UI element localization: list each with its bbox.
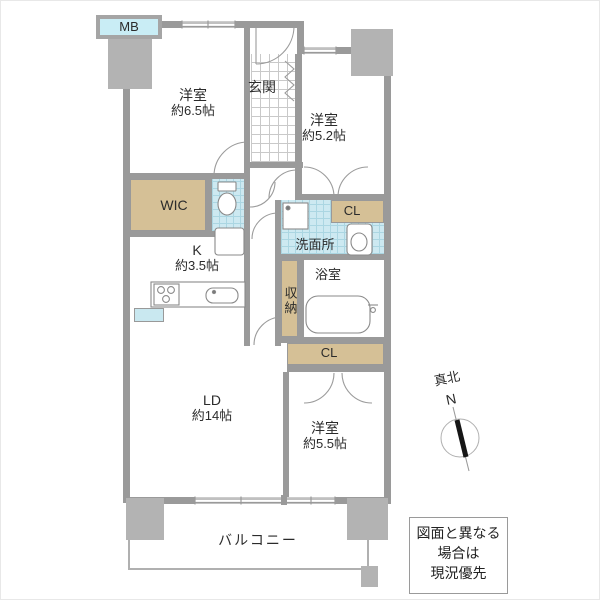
stove bbox=[154, 284, 179, 305]
wall-corridor-right bbox=[275, 200, 281, 346]
balcony-outline-bottom bbox=[128, 568, 363, 570]
bathtub bbox=[306, 296, 370, 333]
closet-upper-label: CL bbox=[344, 203, 361, 219]
meter-box-label: MB bbox=[119, 19, 139, 35]
room-name: 洋室 bbox=[171, 87, 215, 103]
bath-faucet-knob bbox=[371, 308, 376, 313]
room-name: WIC bbox=[160, 197, 187, 213]
kitchen-sink bbox=[206, 288, 238, 303]
wall-top-left bbox=[151, 21, 304, 28]
balcony-drain-block bbox=[361, 566, 378, 587]
pipe-space-box bbox=[134, 308, 164, 322]
room-name: 洋室 bbox=[302, 112, 346, 128]
disclaimer-line: 場合は bbox=[410, 543, 507, 563]
compass-needle bbox=[457, 420, 466, 457]
room-name: バルコニー bbox=[218, 532, 298, 548]
true-north-label: 真北 bbox=[433, 368, 462, 389]
stove-burner bbox=[163, 296, 170, 303]
room-name: 洗面所 bbox=[295, 237, 334, 253]
compass bbox=[441, 407, 479, 471]
wall-bedroom65-bottom bbox=[130, 173, 250, 179]
wall-ld-bedroom55 bbox=[283, 372, 289, 503]
wall-wic-bottom bbox=[130, 231, 246, 237]
closet-lower-door-arc-right bbox=[342, 373, 372, 403]
wall-bedroom52-bottom bbox=[295, 194, 391, 200]
stove-burner bbox=[158, 287, 165, 294]
wall-corridor-left bbox=[244, 168, 250, 346]
bedroom55-label: 洋室 約5.5帖 bbox=[303, 420, 347, 452]
wic-label: WIC bbox=[160, 197, 187, 213]
entrance-floor bbox=[251, 54, 295, 162]
balcony-outline-left bbox=[128, 539, 130, 570]
room-name: LD bbox=[192, 392, 232, 408]
washroom-label: 洗面所 bbox=[295, 237, 334, 253]
closet-upper-door-arc-left bbox=[304, 167, 334, 197]
storage-label: 収納 bbox=[281, 286, 300, 316]
room-name: CL bbox=[344, 203, 361, 219]
kitchen-counter bbox=[151, 282, 245, 307]
toilet-floor bbox=[212, 179, 244, 231]
wall-right bbox=[384, 53, 391, 503]
pillar-bottom-left bbox=[126, 498, 164, 540]
wall-wic-toilet bbox=[206, 179, 212, 237]
entrance-label: 玄関 bbox=[248, 79, 276, 95]
wall-bath-bottom bbox=[275, 337, 391, 343]
balcony-outline-right bbox=[367, 540, 369, 567]
floorplan-canvas: MB 洋室 約6.5帖 玄関 洋室 約5.2帖 WIC K 約3.5帖 洗面所 … bbox=[0, 0, 600, 600]
toilet-door-arc bbox=[250, 182, 275, 207]
room-size: 約3.5帖 bbox=[175, 258, 219, 274]
room-name: 玄関 bbox=[248, 79, 276, 95]
pillar-top-left bbox=[108, 39, 152, 89]
closet-lower-label: CL bbox=[321, 345, 338, 361]
closet-lower-door-arc-left bbox=[304, 373, 334, 403]
compass-circle bbox=[441, 419, 479, 457]
room-name: 浴室 bbox=[315, 267, 341, 283]
bedroom65-label: 洋室 約6.5帖 bbox=[171, 87, 215, 119]
room-size: 約5.2帖 bbox=[302, 128, 346, 144]
bedroom65-door-arc bbox=[214, 142, 248, 176]
room-size: 約5.5帖 bbox=[303, 436, 347, 452]
bedroom52-door-arc bbox=[269, 170, 297, 198]
compass-axis-line bbox=[453, 407, 469, 471]
north-letter: N bbox=[444, 390, 457, 408]
disclaimer-line: 図面と異なる bbox=[410, 523, 507, 543]
wall-top-right bbox=[297, 47, 357, 54]
living-dining-label: LD 約14帖 bbox=[192, 392, 232, 424]
wall-closet-lower-bottom bbox=[287, 365, 391, 372]
disclaimer-line: 現況優先 bbox=[410, 563, 507, 583]
stove-burner bbox=[168, 287, 175, 294]
closet-upper-door-arc-right bbox=[338, 167, 368, 197]
wall-washroom-bottom bbox=[275, 254, 391, 260]
pillar-top-right bbox=[351, 29, 393, 76]
pillar-bottom-right bbox=[347, 498, 388, 540]
wall-left bbox=[123, 39, 130, 503]
room-size: 約6.5帖 bbox=[171, 103, 215, 119]
wall-entrance-left bbox=[244, 28, 250, 173]
disclaimer-box: 図面と異なる 場合は 現況優先 bbox=[409, 517, 508, 594]
bedroom52-label: 洋室 約5.2帖 bbox=[302, 112, 346, 144]
wall-bedroom52-left bbox=[295, 54, 302, 200]
sink-faucet bbox=[212, 290, 215, 293]
room-name: K bbox=[175, 242, 219, 258]
balcony-label: バルコニー bbox=[218, 532, 298, 548]
bathroom-label: 浴室 bbox=[315, 267, 341, 283]
room-name: 洋室 bbox=[303, 420, 347, 436]
room-size: 約14帖 bbox=[192, 408, 232, 424]
room-name: 収納 bbox=[283, 286, 298, 316]
room-name: CL bbox=[321, 345, 338, 361]
kitchen-label: K 約3.5帖 bbox=[175, 242, 219, 274]
